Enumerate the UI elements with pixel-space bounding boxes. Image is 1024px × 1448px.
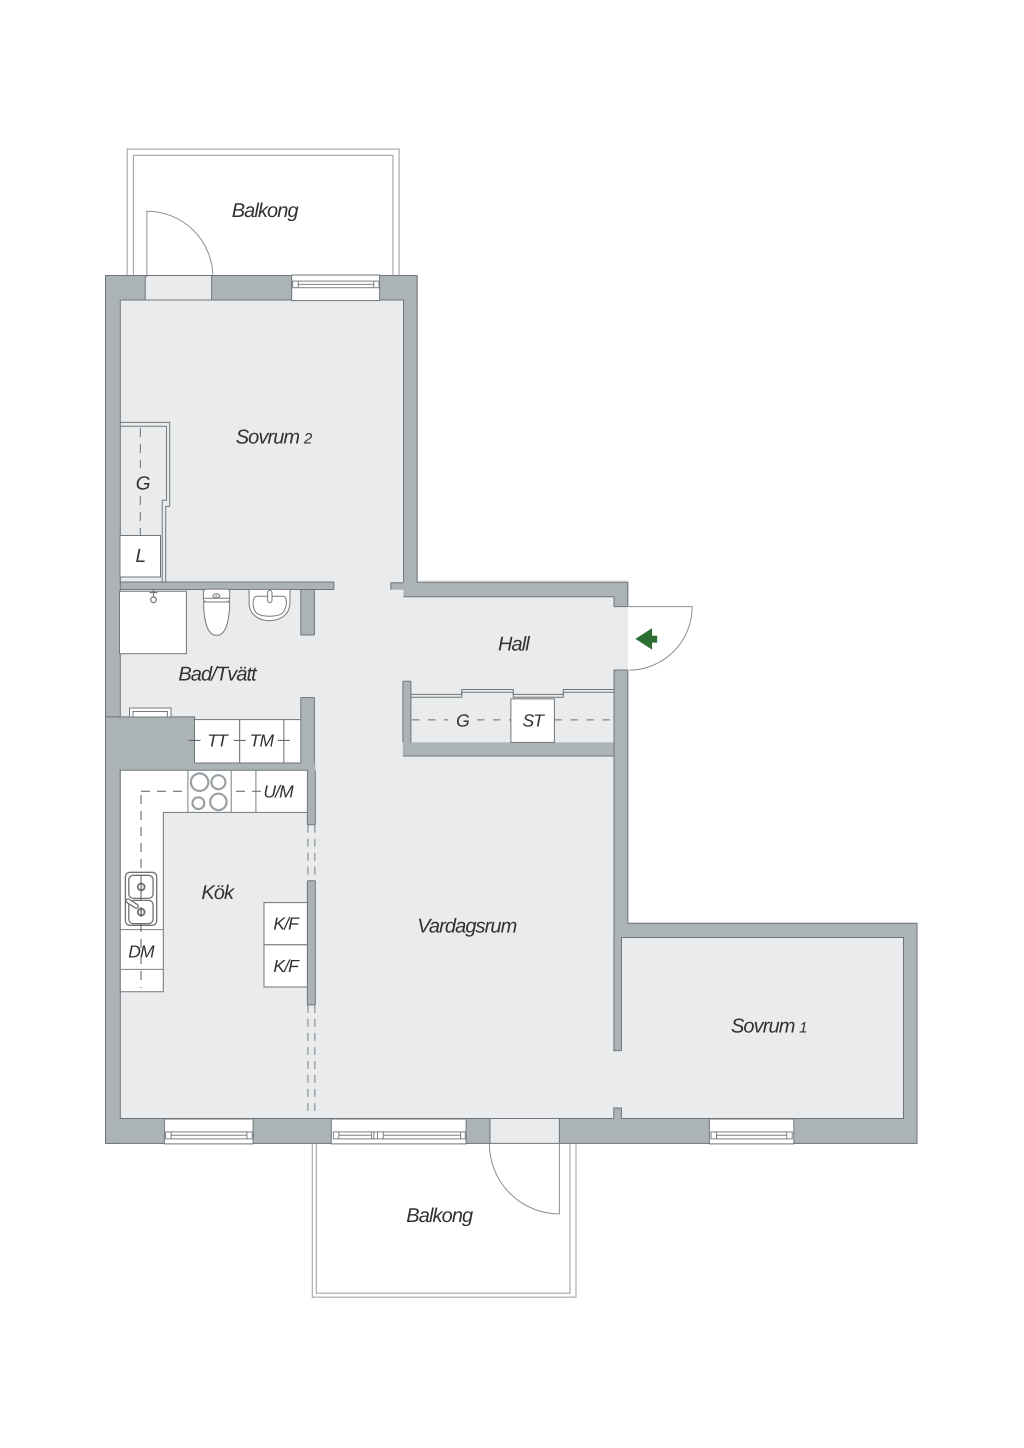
svg-text:TT: TT [207,731,229,751]
svg-text:DM: DM [128,942,155,962]
svg-text:Vardagsrum: Vardagsrum [417,916,516,938]
svg-text:ST: ST [523,710,546,730]
svg-text:G: G [136,474,150,495]
svg-text:Hall: Hall [498,634,530,656]
svg-text:TM: TM [250,731,275,751]
svg-text:Balkong: Balkong [406,1205,473,1227]
svg-text:Bad/Tvätt: Bad/Tvätt [178,664,258,686]
svg-text:Kök: Kök [201,882,235,904]
svg-text:L: L [135,546,145,567]
svg-text:K/F: K/F [273,956,300,976]
svg-text:G: G [456,710,469,730]
svg-text:Balkong: Balkong [232,200,299,222]
svg-text:Sovrum 1: Sovrum 1 [731,1016,807,1038]
svg-text:Sovrum 2: Sovrum 2 [236,427,313,449]
svg-text:K/F: K/F [273,914,300,934]
svg-text:U/M: U/M [263,781,294,801]
